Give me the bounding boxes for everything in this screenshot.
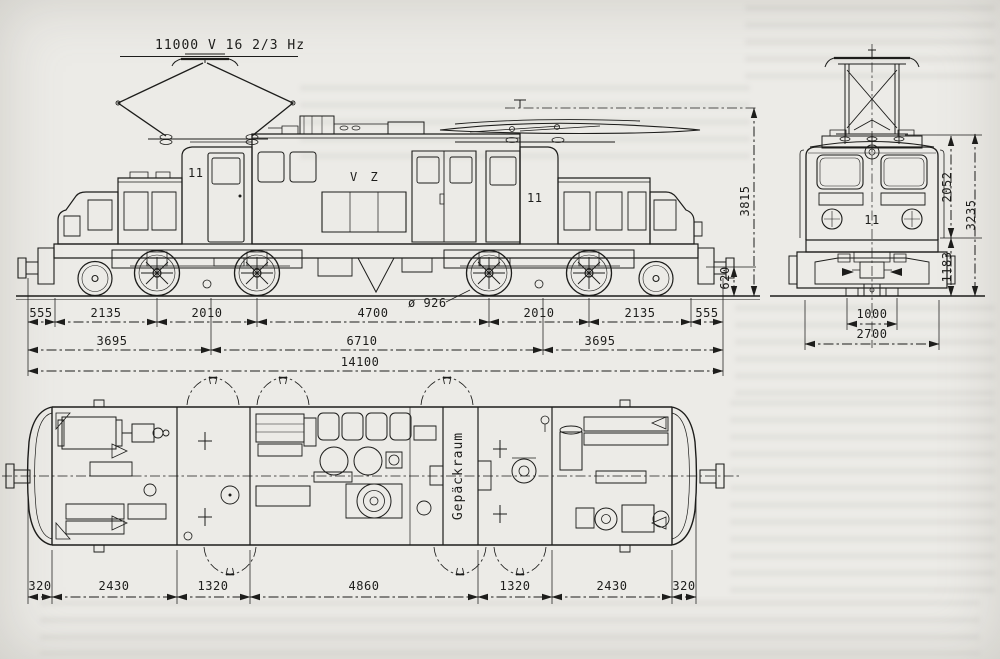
dim-label: 3695	[97, 334, 128, 348]
dim-label-panto-height: 3815	[738, 186, 752, 217]
front-cab-number: 11	[864, 213, 879, 227]
side-cab-number-left: 11	[188, 166, 203, 180]
dim-label: 2700	[857, 327, 888, 341]
dim-label: 1320	[198, 579, 229, 593]
plan-vestibule-right	[493, 416, 549, 523]
side-cab-number-right: 11	[527, 191, 542, 205]
dim-label: 2430	[99, 579, 130, 593]
dim-label: 1320	[500, 579, 531, 593]
scanned-drawing-page: 11000 V 16 2/3 Hz	[0, 0, 1000, 659]
dim-label: 320	[28, 579, 51, 593]
dim-label: 320	[672, 579, 695, 593]
locomotive-drawing: 11000 V 16 2/3 Hz	[0, 0, 1000, 659]
dim-label: 555	[29, 306, 52, 320]
dim-label-buffer-height: 620	[718, 266, 732, 289]
pantograph-lowered-icon	[440, 120, 700, 143]
dim-label: 2430	[597, 579, 628, 593]
dim-label: 4860	[349, 579, 380, 593]
dim-label: 555	[695, 306, 718, 320]
dim-label: 6710	[347, 334, 378, 348]
dim-label: 2010	[192, 306, 223, 320]
catenary-voltage-label: 11000 V 16 2/3 Hz	[155, 38, 305, 53]
front-view: 11	[770, 44, 985, 350]
dim-label-frame-height: 1183	[940, 252, 954, 283]
dim-label: 2135	[91, 306, 122, 320]
front-dimensions: 2052 1183 3235 1000 2700	[805, 134, 982, 350]
dim-label-body-height: 3235	[964, 200, 978, 231]
side-body	[58, 134, 702, 244]
plan-vestibule-left	[184, 432, 239, 540]
plan-engine-room	[256, 413, 436, 518]
height-reference-fitting	[514, 100, 526, 108]
baggage-room-label: Gepäckraum	[451, 432, 466, 520]
dim-label: 4700	[358, 306, 389, 320]
dim-label: 1000	[857, 307, 888, 321]
wheel-diameter-label: ø 926	[408, 296, 447, 310]
side-body-marking: V Z	[350, 170, 381, 184]
dim-label: 3695	[585, 334, 616, 348]
side-view: 11000 V 16 2/3 Hz	[16, 38, 760, 376]
pantograph-raised-icon	[116, 54, 295, 145]
dim-label: 2135	[625, 306, 656, 320]
side-running-gear	[18, 244, 734, 296]
dim-label: 2010	[524, 306, 555, 320]
dim-label-cab-height: 2052	[940, 172, 954, 203]
dim-label-total-length: 14100	[341, 355, 380, 369]
plan-machinery-right	[560, 417, 669, 532]
plan-view: Gepäckraum	[2, 377, 740, 604]
